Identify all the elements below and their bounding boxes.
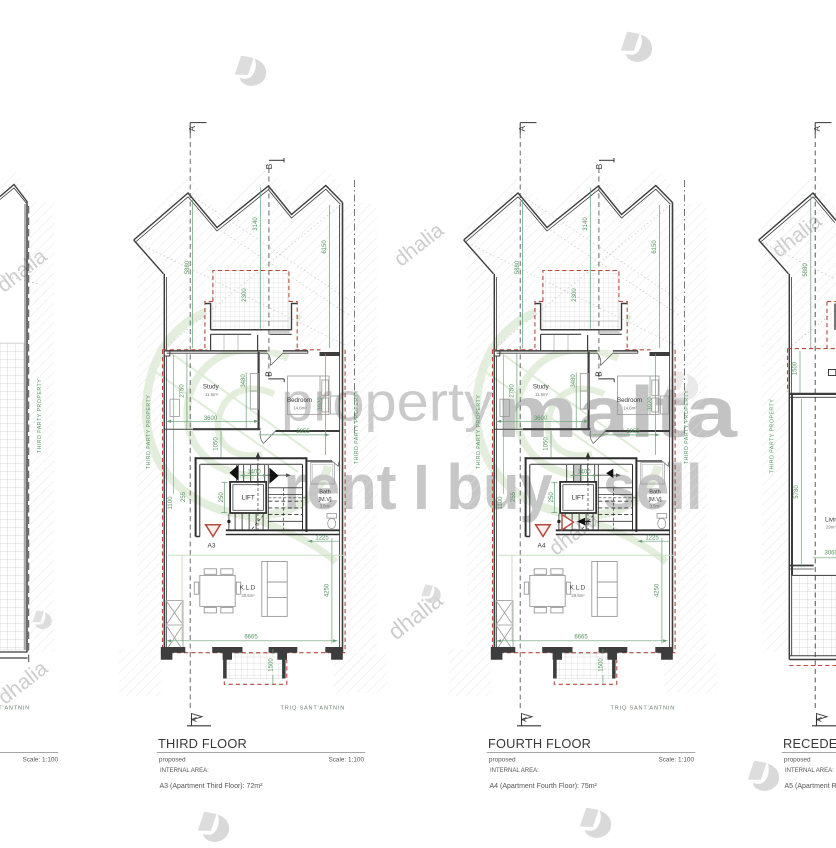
svg-text:29m²: 29m² (826, 525, 836, 530)
svg-text:FOURTH FLOOR: FOURTH FLOOR (488, 736, 591, 751)
svg-text:Living: Living (825, 517, 836, 524)
svg-text:TRIQ SANT'ANTNIN: TRIQ SANT'ANTNIN (0, 706, 30, 712)
svg-text:Scale: 1:100: Scale: 1:100 (22, 757, 58, 764)
svg-text:A: A (815, 717, 824, 722)
svg-text:5780: 5780 (794, 485, 800, 499)
svg-text:5: 5 (586, 520, 589, 526)
svg-text:A3: A3 (208, 543, 216, 550)
svg-text:proposed: proposed (784, 757, 811, 764)
svg-text:A5 (Apartment Receded Floor):: A5 (Apartment Receded Floor): 58m² (785, 783, 836, 790)
svg-text:INTERNAL AREA:: INTERNAL AREA: (785, 768, 834, 774)
svg-text:A3 (Apartment Third Floor): 72: A3 (Apartment Third Floor): 72m² (160, 783, 264, 790)
svg-text:A4 (Apartment Fourth Floor): 7: A4 (Apartment Fourth Floor): 75m² (490, 783, 598, 790)
svg-text:A: A (813, 126, 822, 132)
svg-text:THIRD PARTY PROPERTY: THIRD PARTY PROPERTY (37, 379, 43, 453)
svg-text:property: property (281, 371, 494, 433)
svg-text:THIRD FLOOR: THIRD FLOOR (158, 736, 247, 751)
svg-text:5880: 5880 (803, 263, 809, 277)
svg-text:THIRD PARTY PROPERTY: THIRD PARTY PROPERTY (770, 399, 776, 473)
svg-text:RECEDED FLOOR: RECEDED FLOOR (783, 736, 836, 751)
svg-text:3060: 3060 (825, 551, 836, 557)
svg-text:A4: A4 (538, 543, 546, 550)
svg-text:1500: 1500 (793, 361, 799, 375)
